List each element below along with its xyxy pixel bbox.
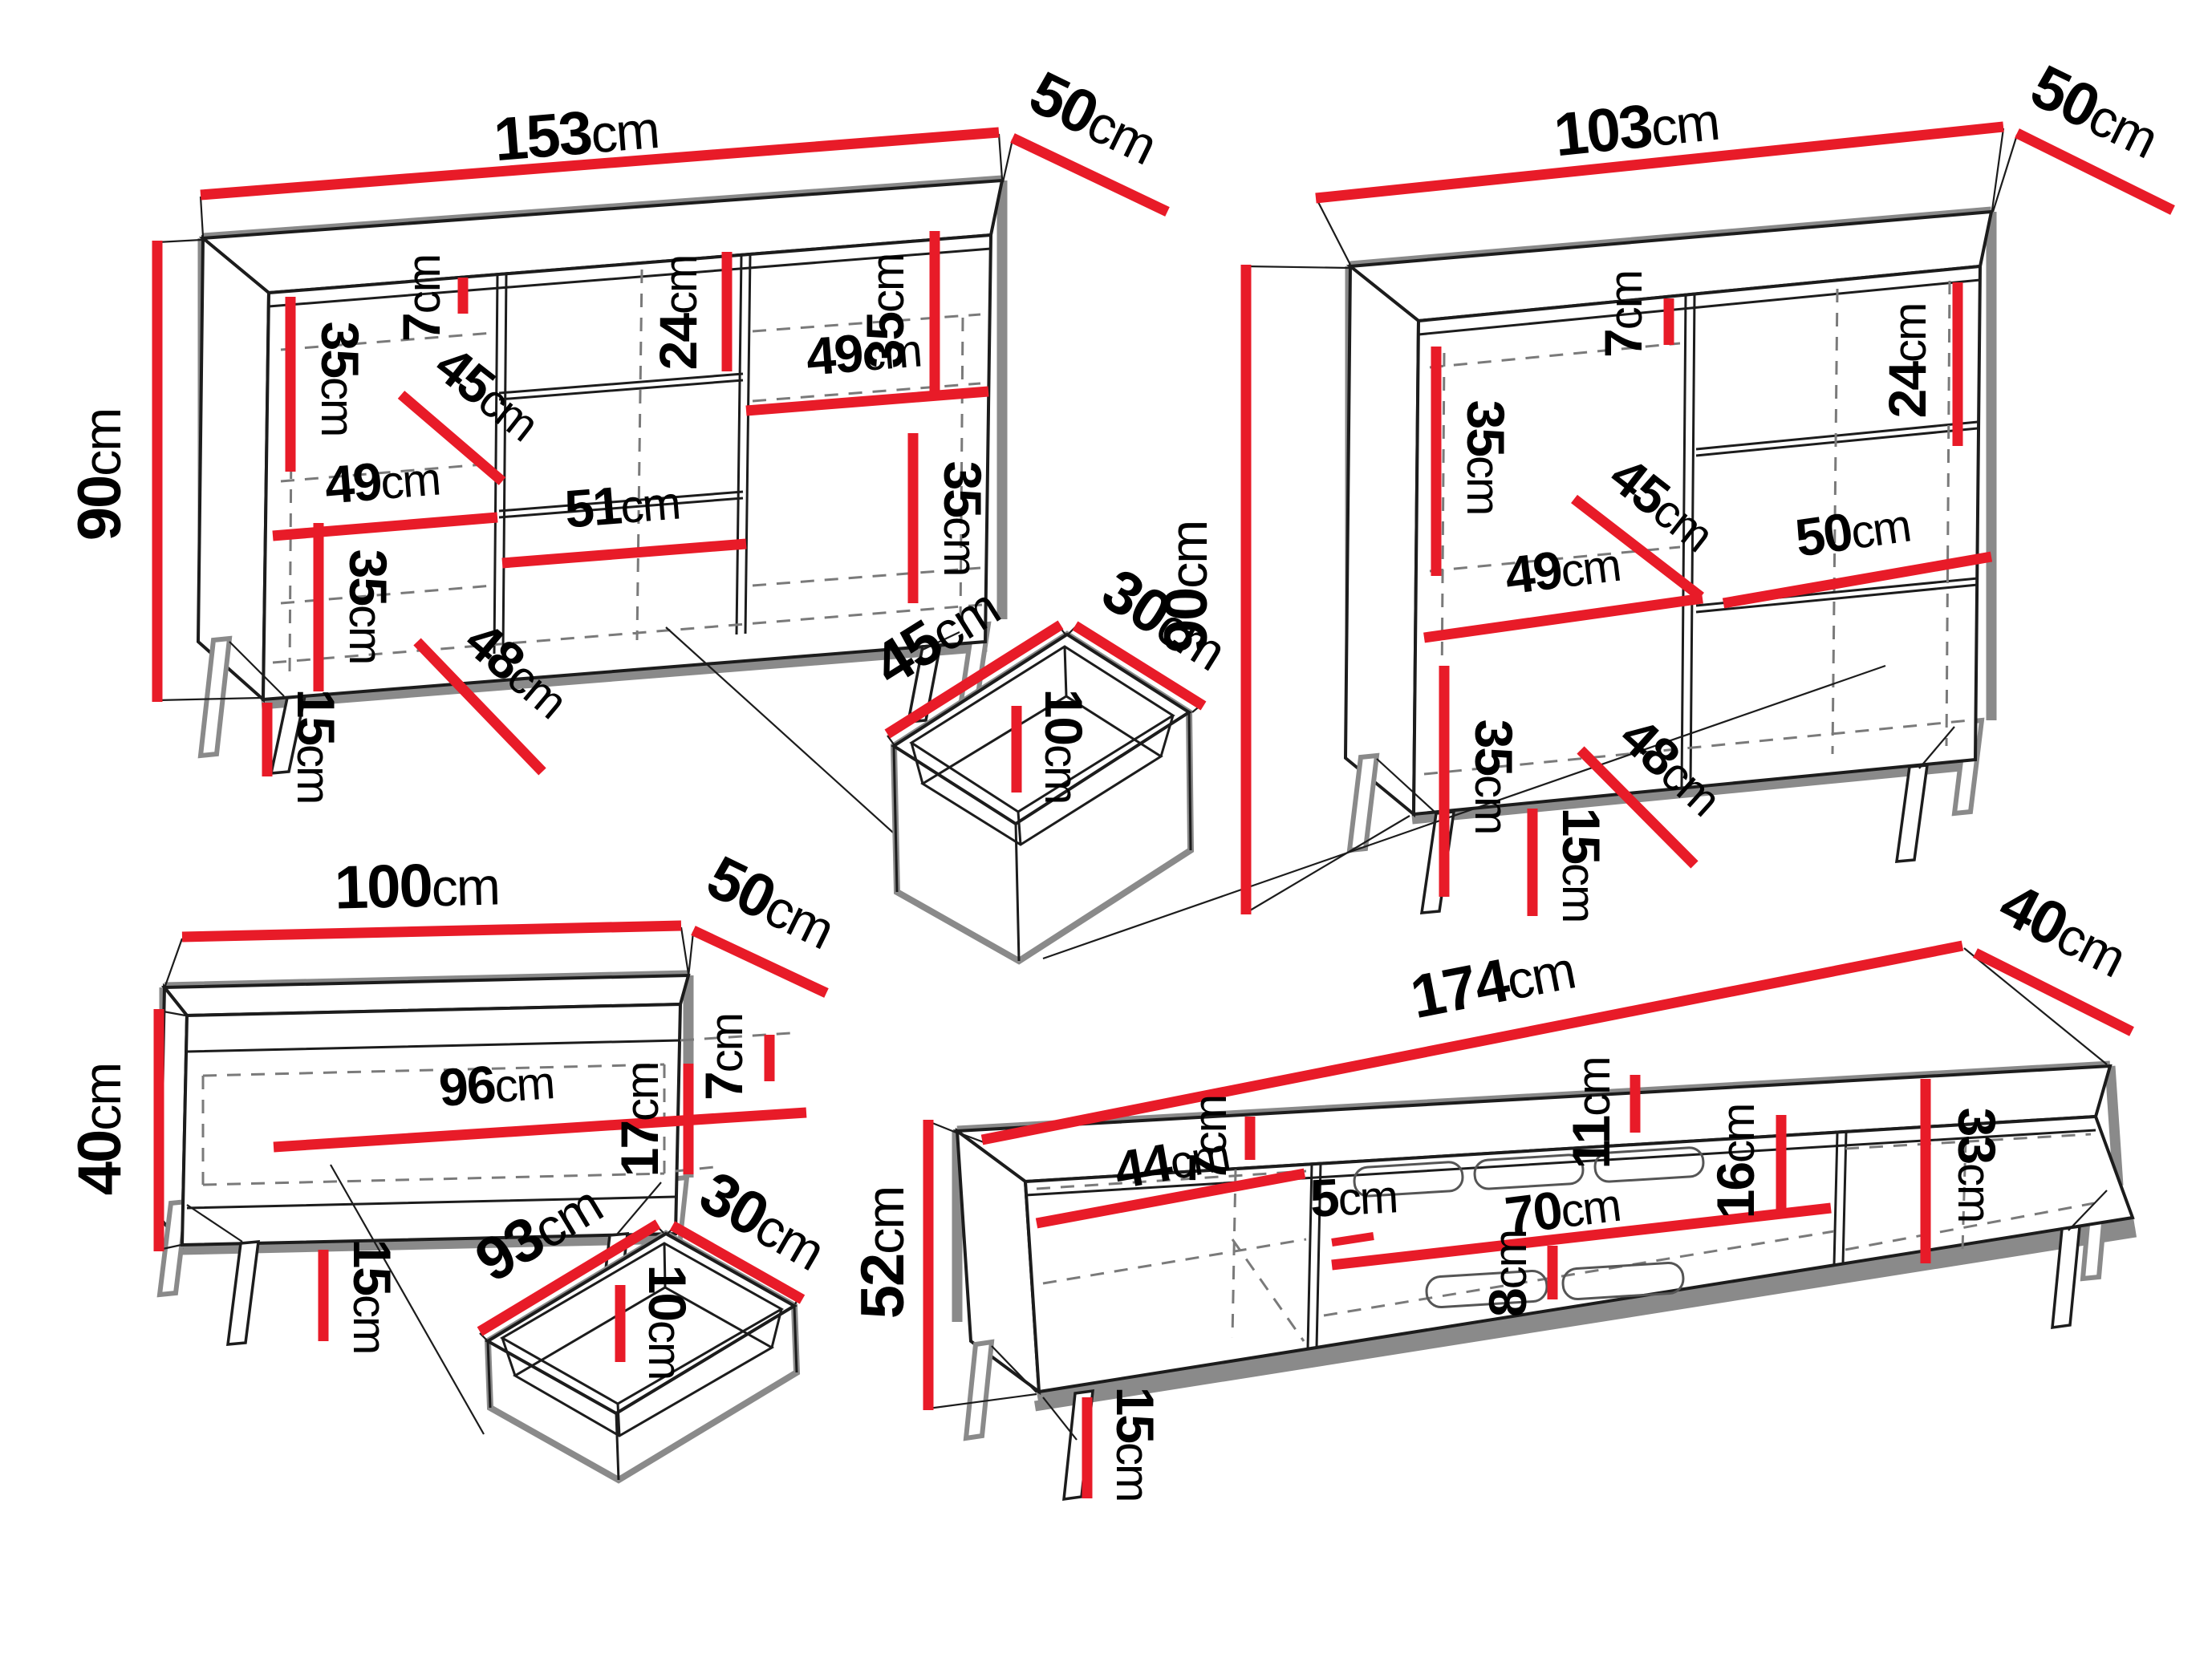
dim-height-label: 10cm (1034, 689, 1094, 804)
drawer-box-small: 45cm 30cm 10cm (862, 556, 1239, 961)
dim-depth-label: 50cm (1020, 59, 1168, 178)
dim-middle-width-label: 51cm (562, 470, 681, 538)
dim-drawer-front-label: 24cm (1877, 304, 1937, 419)
front-left-leg (228, 1242, 258, 1344)
dim-leg-height-label: 15cm (286, 689, 346, 804)
dim-lower-left-shelf-label: 35cm (339, 549, 398, 664)
dim-right-niche-height-label: 33cm (1947, 1108, 2007, 1222)
dim-depth-label: 50cm (2021, 52, 2169, 172)
dim-left-door-width-label: 49cm (323, 446, 441, 514)
back-left-leg (1350, 756, 1377, 850)
dim-upper-shelf-label: 35cm (1456, 400, 1516, 515)
sideboard-small: 103cm 50cm 90cm 7cm 35cm 45cm 49cm 24cm … (1043, 52, 2173, 959)
dim-leg-height-label: 15cm (343, 1239, 402, 1354)
tv-stand: 174cm 40cm 52cm 44cm 7cm 70cm 11cm 16cm … (849, 870, 2137, 1501)
front-right-leg (1897, 765, 1927, 861)
dim-width-label: 174cm (1406, 934, 1580, 1032)
left-face (1345, 266, 1419, 814)
dim-width-label: 100cm (334, 849, 500, 922)
furniture-dimension-sheet: 153cm 50cm 90cm 35cm 7cm 24cm 35cm 45cm … (0, 0, 2212, 1658)
dim-width-line (182, 926, 681, 937)
dim-interior-height-label: 17cm (610, 1063, 669, 1178)
dim-leg-height-label: 15cm (1106, 1387, 1165, 1502)
dim-vent-top-offset-label: 11cm (1561, 1057, 1621, 1169)
dim-interior-width-label: 96cm (437, 1050, 556, 1117)
dim-right-door-width-label: 49cm (804, 318, 923, 386)
dim-height-label: 10cm (638, 1265, 697, 1380)
dim-lower-shelf-label: 35cm (1464, 720, 1524, 834)
dim-height-label: 52cm (849, 1187, 917, 1320)
dim-height-label: 90cm (66, 409, 134, 541)
dim-lower-right-shelf-label: 35cm (933, 461, 992, 576)
back-left-leg (201, 638, 229, 756)
dim-top-rail-label: 7cm (694, 1014, 753, 1101)
dim-upper-left-shelf-label: 35cm (310, 322, 370, 436)
dim-drawer-front-label: 24cm (648, 256, 708, 371)
left-face (198, 238, 269, 699)
dim-divider-gap-label: 5cm (1309, 1164, 1398, 1228)
dim-top-gap-label: 7cm (392, 255, 451, 342)
diagram-canvas: 153cm 50cm 90cm 35cm 7cm 24cm 35cm 45cm … (0, 0, 2212, 1658)
dim-top-gap-label: 7cm (1178, 1096, 1237, 1182)
dim-top-gap-label: 7cm (1593, 271, 1653, 358)
back-left-leg (966, 1342, 992, 1438)
dim-height-label: 40cm (66, 1064, 134, 1196)
dim-vent-height-label: 16cm (1706, 1105, 1765, 1219)
dim-leg-height-label: 15cm (1552, 808, 1611, 922)
dim-bottom-offset-label: 8cm (1478, 1230, 1537, 1317)
